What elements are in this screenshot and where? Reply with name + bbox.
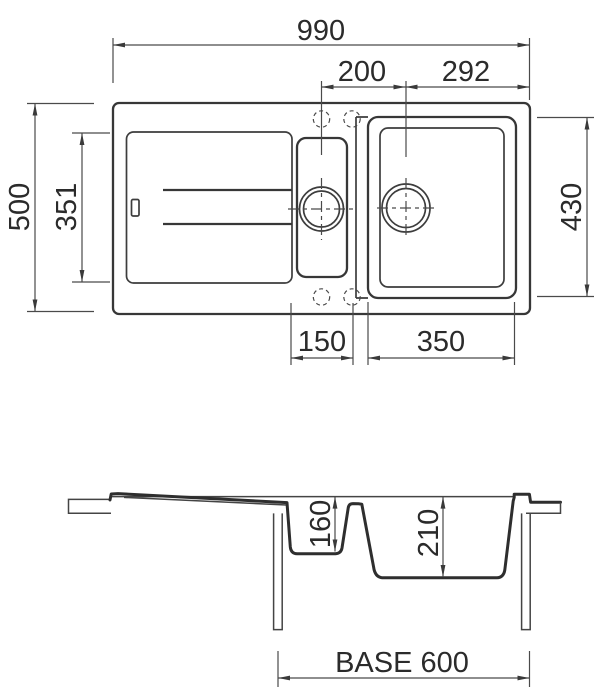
- dim-drain-to-edge-value: 292: [442, 56, 490, 88]
- dim-drainboard-depth: 351: [51, 133, 110, 282]
- dim-main-bowl-outer-depth-value: 430: [556, 183, 588, 231]
- dim-drainboard-depth-value: 351: [51, 183, 83, 231]
- cabinet-leg-left: [274, 513, 283, 629]
- dim-drain-to-edge: 292: [406, 56, 530, 89]
- sink-technical-drawing-page: 990 200 292 500: [0, 0, 600, 695]
- dim-main-bowl-depth: 210: [413, 497, 445, 577]
- section-view-group: 160 210 BASE 600: [69, 494, 561, 687]
- bowl-step-outline: [356, 117, 368, 298]
- dim-base-cabinet-value: BASE 600: [335, 647, 469, 679]
- dim-main-bowl-width-value: 350: [417, 326, 465, 358]
- dim-half-bowl-width: 150: [291, 303, 353, 365]
- dim-drain-spacing-value: 200: [338, 56, 386, 88]
- dim-overall-width-value: 990: [297, 15, 345, 47]
- dim-half-bowl-width-value: 150: [298, 326, 346, 358]
- counter-right-stub: [526, 502, 561, 513]
- top-view-group: 990 200 292 500: [4, 15, 594, 365]
- dim-main-bowl-outer-depth: 430: [537, 118, 594, 297]
- dim-half-bowl-depth: 160: [305, 497, 337, 552]
- dim-overall-depth-value: 500: [4, 183, 36, 231]
- cabinet-leg-right: [522, 513, 531, 629]
- tap-hole-icon: [313, 289, 329, 305]
- dim-base-cabinet: BASE 600: [278, 647, 530, 687]
- tap-hole-icon: [344, 111, 360, 127]
- overflow-slot: [132, 200, 140, 217]
- counter-left-stub: [69, 499, 112, 513]
- tap-hole-icon: [344, 289, 360, 305]
- dim-drain-spacing: 200: [322, 56, 406, 89]
- dim-half-bowl-depth-value: 160: [305, 500, 337, 548]
- dim-main-bowl-width: 350: [368, 302, 515, 365]
- drainboard-rect: [127, 132, 293, 283]
- main-bowl-outer-rect: [368, 117, 516, 298]
- main-bowl-drain-icon: [377, 178, 437, 238]
- main-bowl-inner-rect: [380, 128, 504, 287]
- dim-main-bowl-depth-value: 210: [413, 509, 445, 557]
- sink-technical-drawing: 990 200 292 500: [0, 0, 600, 695]
